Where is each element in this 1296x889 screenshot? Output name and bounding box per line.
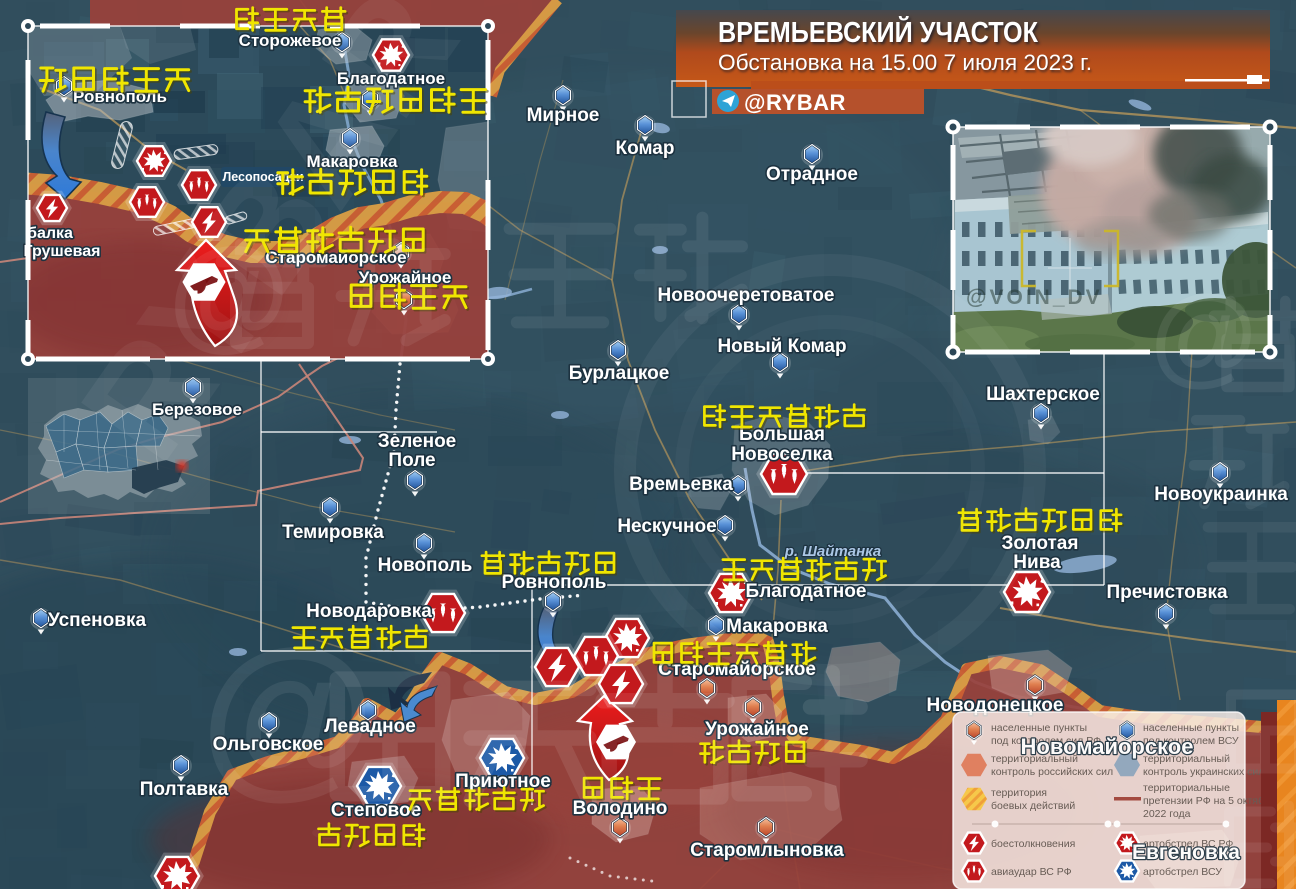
svg-text:@RYBAR: @RYBAR [744,90,846,115]
svg-text:боевых действий: боевых действий [991,800,1075,812]
svg-text:авиаудар ВС РФ: авиаудар ВС РФ [991,866,1072,878]
svg-text:Поле: Поле [388,450,435,471]
svg-text:претензии РФ на 5 октября: претензии РФ на 5 октября [1143,795,1275,807]
svg-text:Грушевая: Грушевая [23,243,100,260]
svg-text:населенные пункты: населенные пункты [1143,722,1239,734]
svg-text:Успеновка: Успеновка [48,610,147,631]
svg-text:территория: территория [991,787,1047,799]
svg-text:Обстановка на 15.00 7 июля 202: Обстановка на 15.00 7 июля 2023 г. [718,50,1092,75]
svg-text:2022 года: 2022 года [1143,808,1191,820]
svg-text:Зеленое: Зеленое [378,431,457,452]
svg-text:Новомайорское: Новомайорское [1021,734,1194,759]
svg-text:Новополь: Новополь [378,555,473,576]
svg-text:артобстрел ВСУ: артобстрел ВСУ [1143,866,1222,878]
svg-text:Новоселка: Новоселка [731,444,833,465]
svg-text:Темировка: Темировка [282,522,384,543]
svg-text:Старомлыновка: Старомлыновка [690,840,844,861]
svg-text:Отрадное: Отрадное [766,164,858,185]
svg-text:Шахтерское: Шахтерское [986,384,1100,405]
svg-text:Пречистовка: Пречистовка [1106,582,1227,603]
svg-text:населенные пункты: населенные пункты [991,722,1087,734]
svg-text:р. Шайтанка: р. Шайтанка [784,543,882,560]
svg-text:территориальные: территориальные [1143,782,1230,794]
svg-text:Комар: Комар [616,138,675,159]
svg-text:Мирное: Мирное [527,105,600,126]
svg-text:контроль российских сил: контроль российских сил [991,766,1113,778]
svg-text:балка: балка [27,225,73,242]
svg-text:ВРЕМЬЕВСКИЙ УЧАСТОК: ВРЕМЬЕВСКИЙ УЧАСТОК [718,15,1038,49]
svg-text:боестолкновения: боестолкновения [991,838,1075,850]
svg-text:@: @ [200,613,376,814]
